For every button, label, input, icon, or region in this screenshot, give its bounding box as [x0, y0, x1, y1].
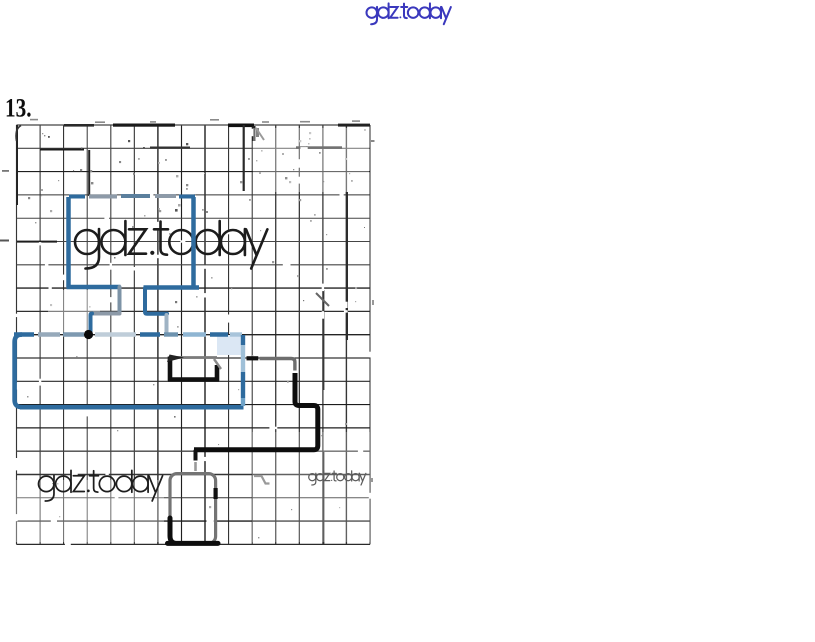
svg-text:13.: 13.: [5, 94, 32, 123]
